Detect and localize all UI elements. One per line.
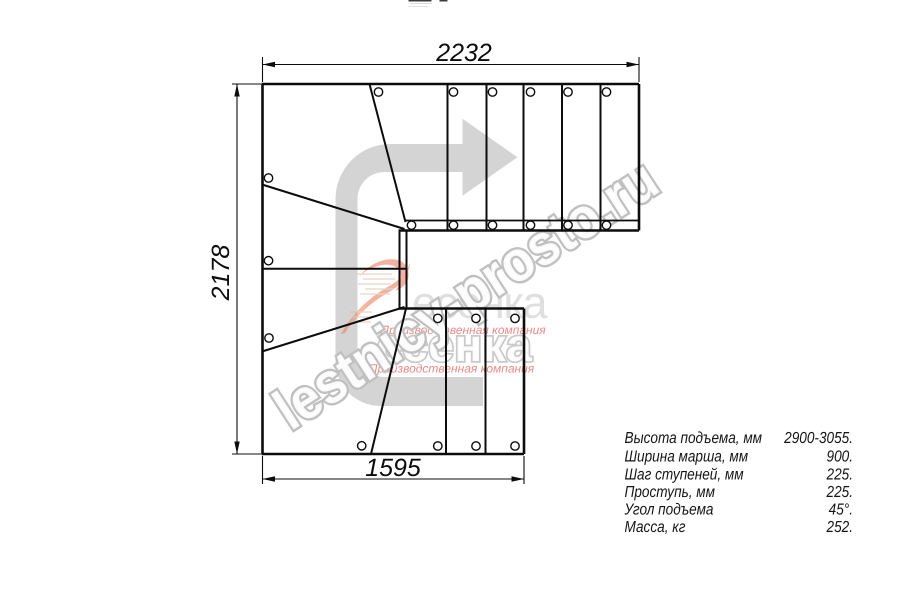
svg-text:45°.: 45°. (829, 502, 853, 519)
svg-text:2232: 2232 (435, 39, 492, 67)
svg-text:900.: 900. (827, 449, 853, 466)
svg-text:225.: 225. (826, 467, 853, 484)
svg-text:Ширина марша, мм: Ширина марша, мм (625, 449, 749, 466)
svg-text:2900-3055.: 2900-3055. (783, 430, 853, 447)
svg-text:Шаг ступеней, мм: Шаг ступеней, мм (625, 467, 744, 484)
svg-text:Угол подъема: Угол подъема (624, 502, 714, 519)
svg-text:1595: 1595 (365, 454, 421, 482)
svg-text:Высота подъема, мм: Высота подъема, мм (625, 430, 763, 447)
svg-text:Проступь, мм: Проступь, мм (625, 484, 715, 501)
svg-text:Масса, кг: Масса, кг (625, 519, 686, 536)
svg-text:252.: 252. (826, 519, 853, 536)
svg-text:225.: 225. (826, 484, 853, 501)
svg-text:2178: 2178 (207, 245, 235, 302)
